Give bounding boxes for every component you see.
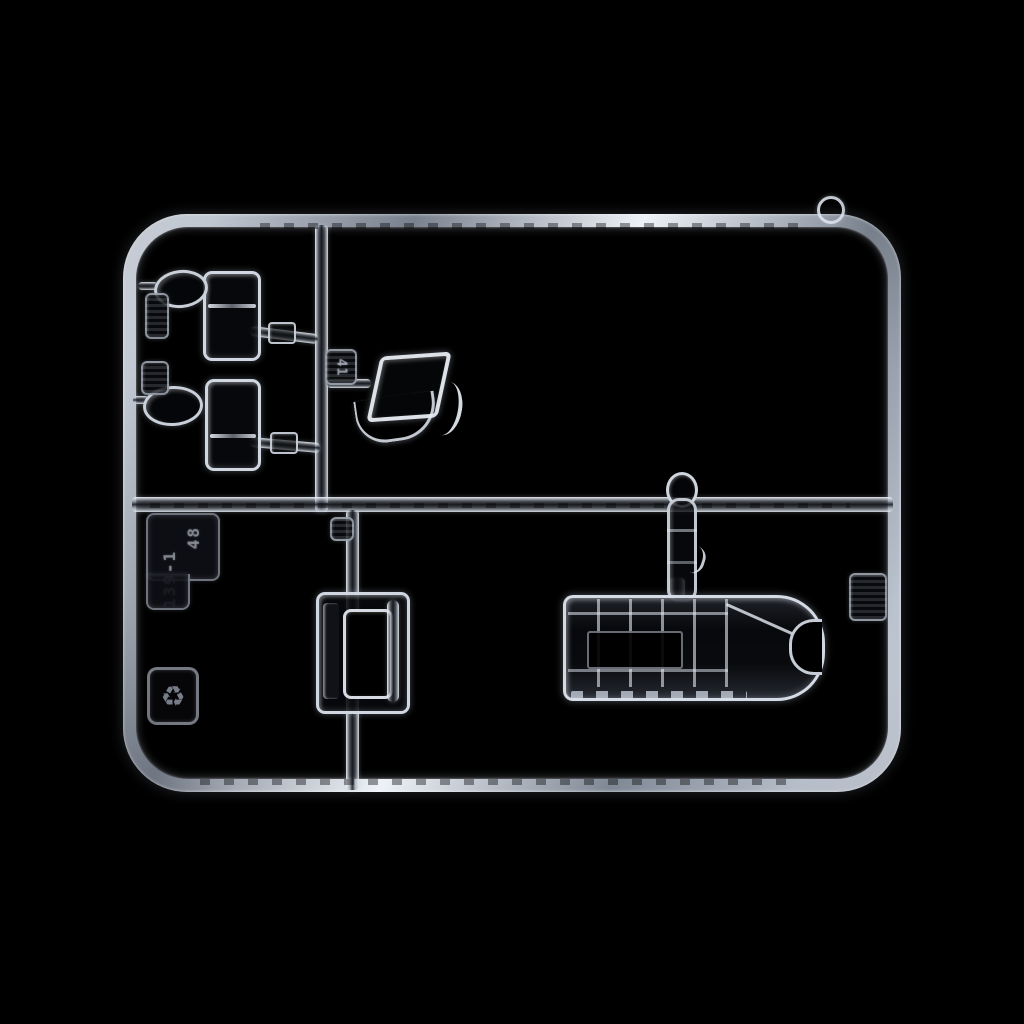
- embossed-stamp-plate-step: [146, 574, 190, 610]
- part-canopy-side-window-upper: [203, 271, 261, 361]
- canopy-clear-pane: [343, 609, 393, 699]
- gate-clamp-upper: [268, 322, 296, 344]
- greenhouse-canopy-window: [587, 631, 683, 669]
- recycle-symbol-tag: ♻: [147, 667, 199, 725]
- part-canopy-side-window-lower: [205, 379, 261, 471]
- window-frame-divider: [208, 304, 256, 308]
- sprue-hanger-loop: [817, 196, 845, 224]
- windscreen-flange: [353, 391, 439, 447]
- part-number-tag-upper-left: [145, 293, 169, 339]
- gate-clamp-lower: [270, 432, 298, 454]
- mold-seam-texture-middle: [150, 503, 850, 508]
- canopy-side-strip: [323, 603, 339, 699]
- part-number-tag-lower-left: [141, 361, 169, 395]
- part-greenhouse-canopy: [563, 595, 819, 701]
- part-sliding-canopy-section: [316, 592, 410, 714]
- part-number-tag-41: 41: [325, 349, 357, 385]
- greenhouse-canopy-gate-teeth: [571, 691, 747, 700]
- part-number-tag-mid-runner: [330, 517, 354, 541]
- canopy-edge-column: [387, 600, 399, 702]
- part-teardrop-sight: [658, 466, 706, 600]
- part-number-tag-right: [849, 573, 887, 621]
- embossed-stamp-plate: 139-1 48: [146, 513, 220, 581]
- recycle-icon: ♻: [160, 680, 185, 713]
- part-windscreen: [356, 350, 464, 444]
- mold-seam-texture-bottom: [200, 779, 800, 785]
- mold-seam-texture-top: [260, 223, 800, 229]
- tag-label: 41: [334, 358, 349, 376]
- window-frame-divider: [210, 434, 256, 438]
- photo-clear-sprue: 41 139-1 48 ♻: [0, 0, 1024, 1024]
